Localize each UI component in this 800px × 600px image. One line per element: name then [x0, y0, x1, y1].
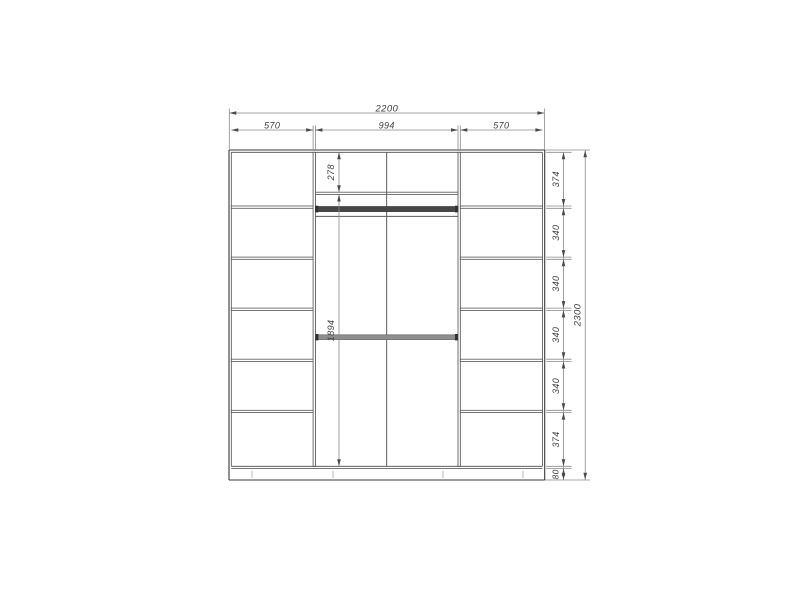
shelf — [460, 359, 542, 361]
shelf — [231, 308, 313, 310]
arrowhead — [562, 459, 566, 466]
arrowhead — [451, 128, 458, 132]
shelf — [231, 410, 313, 412]
arrowhead — [229, 111, 236, 115]
dim-label-right-segment: 374 — [551, 171, 561, 187]
arrowhead — [562, 473, 566, 480]
rod-end-cap — [455, 334, 458, 340]
dim-label-bay-width: 570 — [264, 120, 280, 130]
arrowhead — [537, 111, 544, 115]
dim-label-bay-width: 994 — [379, 120, 395, 130]
dim-label-right-segment: 340 — [551, 276, 561, 292]
shelf — [460, 308, 542, 310]
arrowhead — [562, 413, 566, 420]
drawing-page: 2200570994570374340340340340374802300278… — [0, 0, 800, 600]
arrowhead — [562, 352, 566, 359]
arrowhead — [562, 259, 566, 266]
arrowhead — [337, 185, 341, 192]
shelf — [460, 206, 542, 208]
clothes-rod-upper — [315, 207, 458, 212]
shelf — [231, 257, 313, 259]
arrowhead — [562, 403, 566, 410]
dim-label-right-segment: 340 — [551, 378, 561, 394]
dim-label-bay-width: 570 — [493, 120, 509, 130]
arrowhead — [562, 310, 566, 317]
shelf — [231, 359, 313, 361]
shelf — [460, 257, 542, 259]
arrowhead — [306, 128, 313, 132]
dim-label-right-segment: 80 — [551, 469, 561, 479]
arrowhead — [562, 250, 566, 257]
arrowhead — [231, 128, 238, 132]
arrowhead — [562, 362, 566, 369]
dim-label-right-segment: 340 — [551, 225, 561, 241]
dim-label-right-segment: 374 — [551, 431, 561, 447]
dim-label-top-shelf-height: 278 — [326, 164, 336, 181]
arrowhead — [562, 301, 566, 308]
rod-end-cap — [455, 206, 458, 213]
arrowhead — [562, 152, 566, 159]
arrowhead — [562, 208, 566, 215]
dim-label-overall-height: 2300 — [573, 303, 584, 327]
arrowhead — [337, 152, 341, 159]
clothes-rod-lower — [315, 335, 458, 340]
arrowhead — [583, 150, 587, 157]
arrowhead — [315, 128, 322, 132]
dim-label-opening-height: 1894 — [326, 320, 336, 342]
arrowhead — [562, 199, 566, 206]
rod-end-cap — [315, 334, 318, 340]
arrowhead — [337, 195, 341, 202]
shelf — [460, 410, 542, 412]
dim-label-overall-width: 2200 — [374, 104, 398, 115]
rod-end-cap — [315, 206, 318, 213]
dim-label-right-segment: 340 — [551, 327, 561, 343]
arrowhead — [460, 128, 467, 132]
arrowhead — [337, 459, 341, 466]
arrowhead — [535, 128, 542, 132]
wardrobe-dimension-drawing: 2200570994570374340340340340374802300278… — [0, 0, 800, 600]
shelf — [231, 206, 313, 208]
arrowhead — [583, 473, 587, 480]
